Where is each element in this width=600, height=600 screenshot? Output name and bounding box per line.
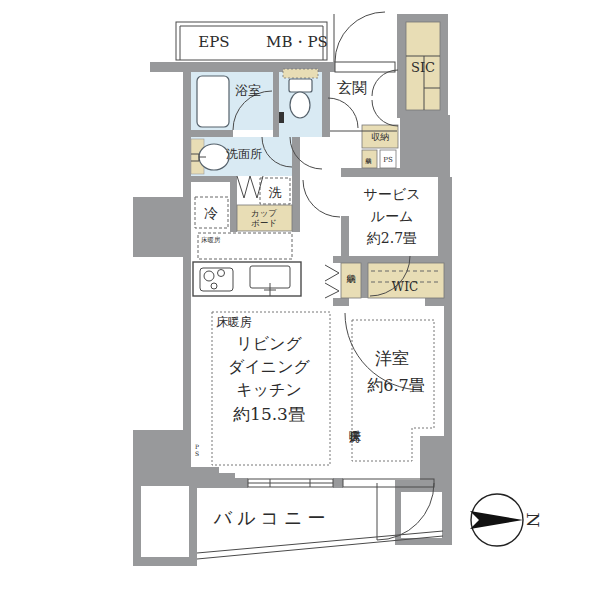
stove-burner xyxy=(211,283,217,289)
wall-segment xyxy=(191,130,233,137)
wall-segment xyxy=(183,257,191,430)
toilet-bowl xyxy=(290,92,310,118)
entrance-door-arc xyxy=(335,12,385,62)
pipe-space-left-label: PS xyxy=(194,443,201,457)
service-room-label-3: 約2.7畳 xyxy=(367,230,417,246)
hall-storage-small xyxy=(362,150,377,168)
cupboard-label-2: ボード xyxy=(251,218,277,228)
entrance-threshold xyxy=(335,62,395,72)
toilet-shelf xyxy=(283,69,318,78)
ldk-label-4: 約15.3畳 xyxy=(233,404,305,424)
wic-label: WIC xyxy=(392,280,418,294)
western-room-label: 洋室 xyxy=(375,348,409,368)
wall-segment xyxy=(438,177,452,256)
wall-segment xyxy=(191,478,248,488)
wall-segment xyxy=(341,216,349,256)
refrigerator-label: 冷 xyxy=(204,205,218,221)
wall-segment xyxy=(444,256,452,306)
wall-segment xyxy=(333,298,349,306)
balcony-left-pillar xyxy=(141,486,189,557)
sic-door-arc xyxy=(372,100,398,126)
compass: N xyxy=(470,494,543,546)
western-floor-heating-label: 床暖房 xyxy=(349,430,361,443)
sic-door-arc xyxy=(372,70,398,96)
ldk-label-3: キッチン xyxy=(236,380,302,399)
ldk-closet xyxy=(341,263,361,298)
wall-segment xyxy=(341,168,400,177)
hall-door-arc xyxy=(328,98,358,128)
washroom-bifold-door xyxy=(237,176,263,198)
ldk-window-sash xyxy=(248,479,333,487)
washer-label: 洗 xyxy=(269,185,282,200)
wall-segment xyxy=(420,436,452,480)
floor-plan-drawing: EPS MB・PS xyxy=(0,0,600,600)
service-room-label-2: ルーム xyxy=(371,208,414,224)
wall-segment xyxy=(133,197,191,257)
closet-bifold-door xyxy=(325,265,339,298)
eps-label: EPS xyxy=(198,33,229,51)
wall-segment xyxy=(322,62,330,137)
washroom-label: 洗面所 xyxy=(226,147,262,161)
wall-segment xyxy=(444,306,452,436)
floor-plan-page: EPS MB・PS xyxy=(0,0,600,600)
ldk-floor-heating-label: 床暖房 xyxy=(216,315,252,329)
stove-burner xyxy=(218,270,225,277)
entrance-label: 玄関 xyxy=(337,79,367,97)
bathtub xyxy=(197,76,229,127)
wall-segment xyxy=(333,478,343,488)
stove-burner xyxy=(204,271,214,281)
wall-segment xyxy=(219,473,235,478)
ldk-label-2: ダイニング xyxy=(228,357,311,376)
hall-storage-label: 収納 xyxy=(371,132,389,142)
balcony-label: バルコニー xyxy=(213,507,331,528)
wall-segment xyxy=(333,256,452,263)
wall-segment xyxy=(191,467,219,478)
compass-north-label: N xyxy=(523,513,543,528)
wall-segment xyxy=(133,430,191,481)
bathroom-label: 浴室 xyxy=(235,83,261,98)
pipe-space-label: PS xyxy=(383,156,393,164)
sic-label: SIC xyxy=(411,60,435,75)
ldk-label-1: リビング xyxy=(236,334,302,353)
wall-segment xyxy=(400,115,450,177)
wall-segment xyxy=(230,176,237,232)
kitchen-faucet xyxy=(264,283,276,296)
cupboard-label-1: カップ xyxy=(251,208,277,218)
mb-ps-label: MB・PS xyxy=(266,33,328,51)
toilet-paper-holder xyxy=(279,112,284,123)
wall-segment xyxy=(183,62,191,197)
corridor-shafts: EPS MB・PS xyxy=(176,22,328,60)
kitchen-floor-heating-label: 床暖房 xyxy=(201,236,221,244)
toilet-tank xyxy=(289,79,312,92)
wall-segment xyxy=(361,263,368,298)
wall-segment xyxy=(273,62,279,137)
service-room-door-arc xyxy=(303,180,340,217)
service-room-label-1: サービス xyxy=(364,186,421,202)
western-room-size-label: 約6.7畳 xyxy=(367,376,424,395)
